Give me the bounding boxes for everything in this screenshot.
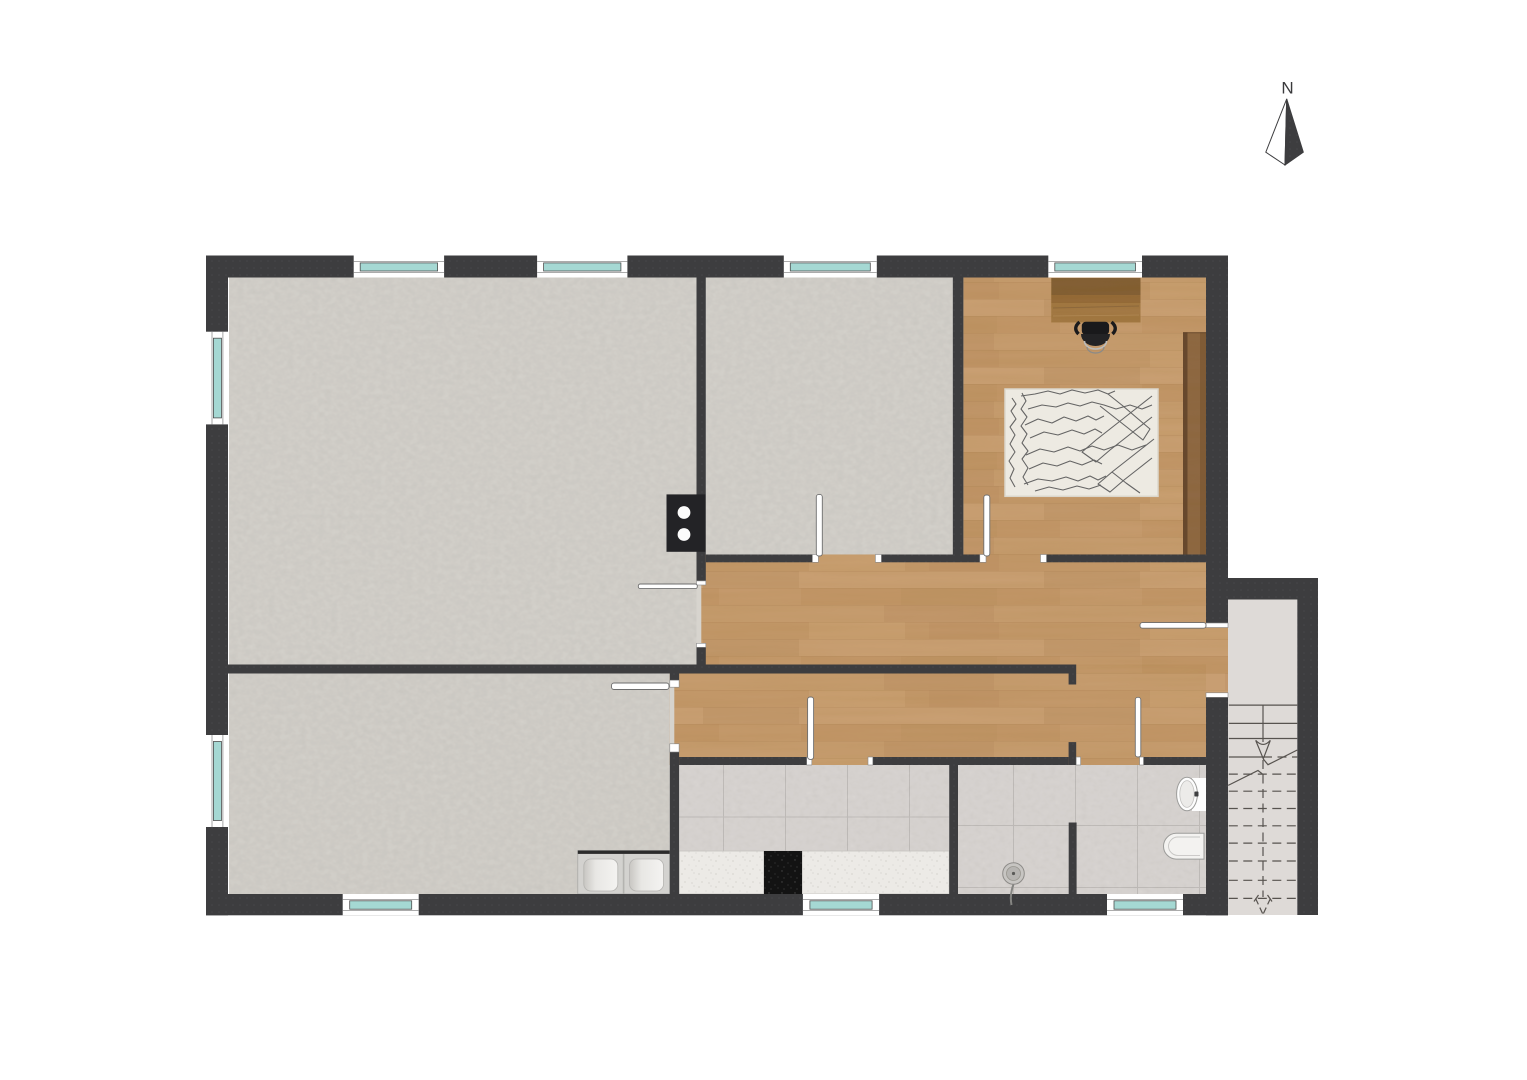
svg-text:N: N xyxy=(1281,79,1293,98)
